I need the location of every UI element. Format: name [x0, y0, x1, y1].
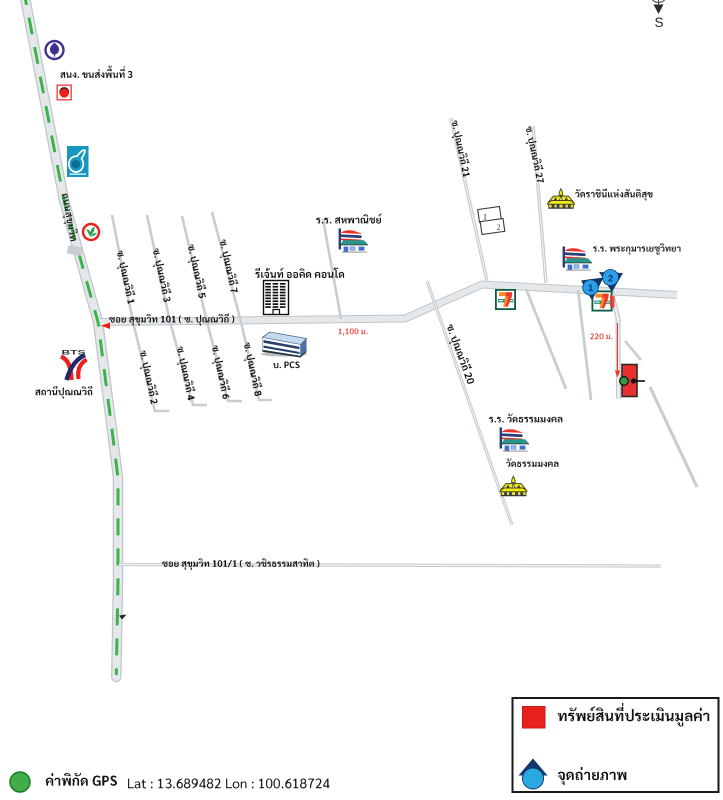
svg-text:2: 2 — [608, 274, 613, 285]
svg-text:1: 1 — [588, 283, 594, 294]
svg-text:S: S — [655, 15, 664, 30]
